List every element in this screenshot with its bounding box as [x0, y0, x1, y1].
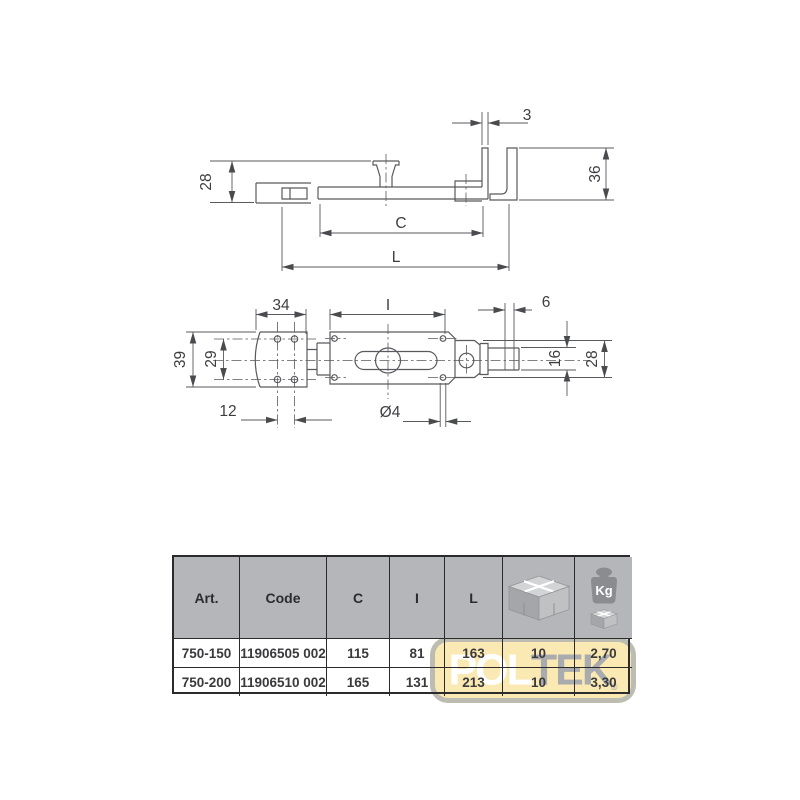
row1-c: 115	[327, 639, 390, 668]
kg-weight-icon: Kg	[589, 567, 619, 605]
dim-label-3: 3	[523, 107, 532, 124]
row2-l: 213	[445, 668, 503, 696]
row1-kg: 2,70	[575, 639, 632, 668]
row2-art: 750-200	[174, 668, 240, 696]
row1-pack: 10	[503, 639, 575, 668]
dim-label-L: L	[392, 249, 401, 266]
side-bolt-bar	[318, 187, 488, 199]
top-view-drawing: 34 I 6 39 29 16 28 12 Ø4	[172, 294, 612, 428]
row1-i: 81	[390, 639, 445, 668]
row2-pack: 10	[503, 668, 575, 696]
technical-drawing: 3 28 36 C L	[160, 90, 650, 460]
carton-box-icon	[508, 575, 570, 621]
dim-label-28-side: 28	[198, 173, 215, 190]
header-art: Art.	[174, 557, 240, 639]
dim-label-28-top: 28	[584, 350, 601, 367]
row2-i: 131	[390, 668, 445, 696]
row1-code: 11906505 002	[240, 639, 327, 668]
small-carton-box-icon	[590, 609, 618, 629]
dim-label-29: 29	[203, 350, 220, 367]
header-l: L	[445, 557, 503, 639]
dim-label-16: 16	[547, 350, 564, 367]
catalog-page: 3 28 36 C L	[0, 0, 800, 800]
side-keeper	[256, 183, 311, 203]
header-i: I	[390, 557, 445, 639]
header-code: Code	[240, 557, 327, 639]
dim-label-C: C	[395, 215, 406, 232]
dim-label-12: 12	[219, 403, 236, 420]
dim-label-34: 34	[272, 297, 290, 314]
header-c: C	[327, 557, 390, 639]
dim-label-I: I	[386, 297, 390, 314]
row2-kg: 3,30	[575, 668, 632, 696]
dim-label-6: 6	[542, 294, 551, 311]
row2-c: 165	[327, 668, 390, 696]
kg-label: Kg	[595, 583, 612, 598]
header-packaging	[503, 557, 575, 639]
row1-art: 750-150	[174, 639, 240, 668]
dim-label-diameter-4: Ø4	[380, 404, 401, 421]
row2-code: 11906510 002	[240, 668, 327, 696]
product-table: Art. Code C I L Kg	[172, 555, 630, 694]
side-view-drawing: 3 28 36 C L	[198, 107, 614, 271]
dim-label-36: 36	[587, 165, 604, 182]
header-weight: Kg	[575, 557, 632, 639]
dim-label-39: 39	[172, 351, 189, 368]
side-guide	[455, 181, 482, 201]
row1-l: 163	[445, 639, 503, 668]
side-l-bracket	[490, 148, 517, 200]
